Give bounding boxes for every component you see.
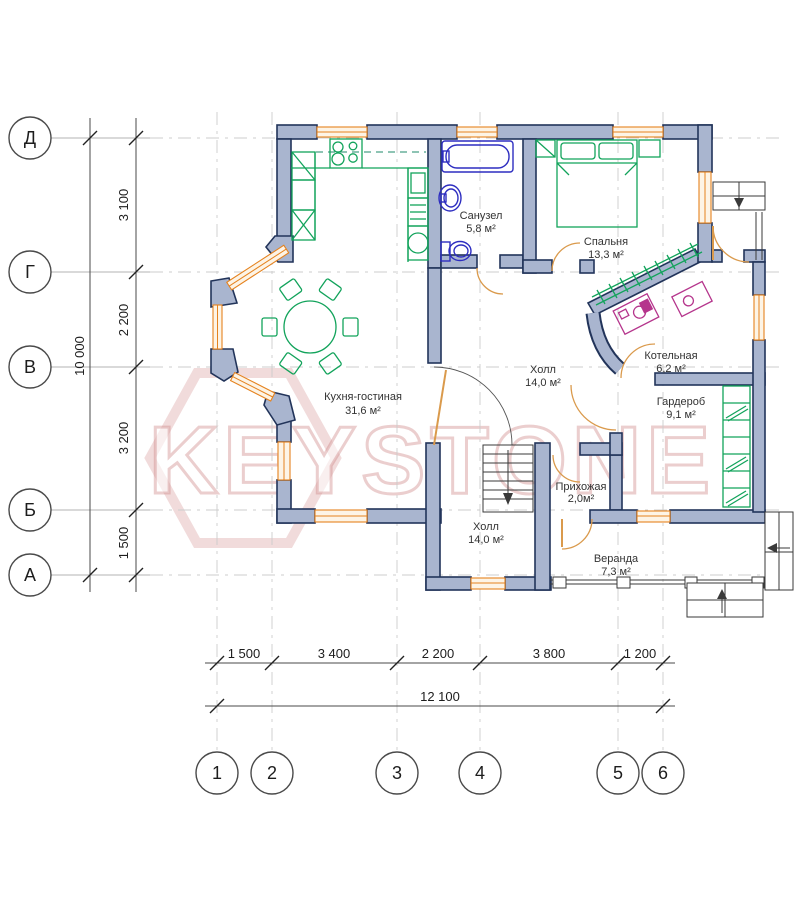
bedroom-furniture xyxy=(536,140,660,227)
floor-plan-drawing: KEYSTONE xyxy=(0,0,800,913)
axis-row-a: А xyxy=(24,565,36,585)
dim-v-seg-0: 3 100 xyxy=(116,189,131,222)
axis-row-b: Б xyxy=(24,500,36,520)
axis-row-d: Д xyxy=(24,128,36,148)
bed-icon xyxy=(557,140,637,227)
veranda-steps-bottom-icon xyxy=(687,583,763,617)
room-label-kotelnaya: Котельная xyxy=(644,350,697,362)
room-area-prihozhaya: 2,0м² xyxy=(568,493,595,505)
dim-h-seg-2: 2 200 xyxy=(422,646,455,661)
room-area-holl-lower: 14,0 м² xyxy=(468,534,504,546)
door-arc-bedroom xyxy=(552,243,580,271)
dim-h-total: 12 100 xyxy=(420,689,460,704)
bathroom-fixtures xyxy=(439,141,513,261)
room-label-kuhnya: Кухня-гостиная xyxy=(324,391,402,403)
room-area-holl-upper: 14,0 м² xyxy=(525,377,561,389)
room-area-veranda: 7,3 м² xyxy=(601,566,631,578)
room-label-sanuzel: Санузел xyxy=(460,210,503,222)
stove-icon xyxy=(330,139,362,168)
washbasin-icon xyxy=(439,185,461,211)
axis-col-4: 4 xyxy=(475,763,485,783)
dim-h-seg-1: 3 400 xyxy=(318,646,351,661)
bathtub-icon xyxy=(442,141,513,172)
axis-col-3: 3 xyxy=(392,763,402,783)
axis-col-6: 6 xyxy=(658,763,668,783)
dim-v-seg-3: 1 500 xyxy=(116,527,131,560)
oven-icon xyxy=(408,168,428,198)
room-label-holl-lower: Холл xyxy=(473,521,499,533)
nightstand-icon xyxy=(639,140,660,157)
dim-v-seg-2: 3 200 xyxy=(116,422,131,455)
axis-row-v: В xyxy=(24,357,36,377)
floor-plan-page: KEYSTONE xyxy=(0,0,800,913)
dishwasher-icon xyxy=(408,198,428,226)
room-label-spalnya: Спальня xyxy=(584,236,628,248)
axis-row-g: Г xyxy=(25,262,35,282)
dim-h-seg-0: 1 500 xyxy=(228,646,261,661)
dim-v-total: 10 000 xyxy=(72,336,87,376)
room-label-prihozhaya: Прихожая xyxy=(556,481,607,493)
axis-col-1: 1 xyxy=(212,763,222,783)
dim-v-seg-1: 2 200 xyxy=(116,304,131,337)
wardrobe-shelving-icon xyxy=(723,386,750,507)
dining-table-icon xyxy=(262,278,358,374)
room-label-veranda: Веранда xyxy=(594,553,639,565)
room-label-garderob: Гардероб xyxy=(657,396,705,408)
dim-h-seg-4: 1 200 xyxy=(624,646,657,661)
door-arc-veranda xyxy=(562,519,592,549)
axis-col-5: 5 xyxy=(613,763,623,783)
room-area-kotelnaya: 6,2 м² xyxy=(656,363,686,375)
dim-h-seg-3: 3 800 xyxy=(533,646,566,661)
room-area-sanuzel: 5,8 м² xyxy=(466,223,496,235)
room-label-holl-upper: Холл xyxy=(530,364,556,376)
room-area-spalnya: 13,3 м² xyxy=(588,249,624,261)
room-area-garderob: 9,1 м² xyxy=(666,409,696,421)
water-heater-icon xyxy=(672,281,712,316)
axis-col-2: 2 xyxy=(267,763,277,783)
veranda-steps-right-icon xyxy=(765,512,793,590)
kitchen-sink-icon xyxy=(408,226,428,260)
room-area-kuhnya: 31,6 м² xyxy=(345,405,381,417)
